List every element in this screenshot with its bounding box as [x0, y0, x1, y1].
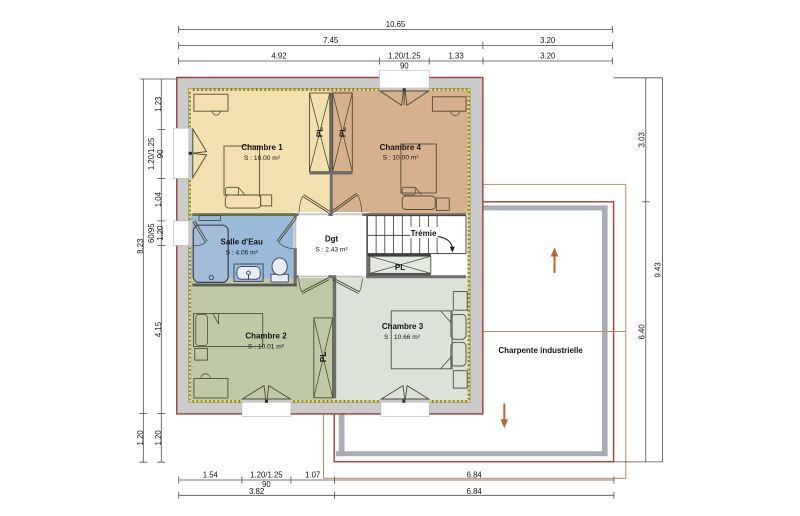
svg-text:S : 4.06 m²: S : 4.06 m² — [226, 250, 259, 257]
svg-text:1.20: 1.20 — [154, 430, 163, 446]
svg-text:PL: PL — [319, 352, 328, 362]
svg-text:Chambre 1: Chambre 1 — [241, 143, 283, 152]
svg-text:3.20: 3.20 — [540, 36, 556, 45]
svg-text:PL: PL — [395, 263, 405, 272]
svg-text:1.33: 1.33 — [449, 52, 464, 61]
svg-text:Salle d'Eau: Salle d'Eau — [221, 238, 263, 247]
svg-text:3.20: 3.20 — [540, 52, 556, 61]
svg-text:Chambre 4: Chambre 4 — [380, 143, 422, 152]
svg-text:1.20/1.25: 1.20/1.25 — [388, 52, 421, 61]
svg-text:Charpente industrielle: Charpente industrielle — [498, 346, 583, 355]
svg-text:8.23: 8.23 — [136, 239, 145, 254]
svg-text:Dgt: Dgt — [325, 235, 339, 244]
svg-text:3.82: 3.82 — [249, 487, 264, 496]
svg-text:PL: PL — [316, 127, 325, 137]
svg-text:1.20: 1.20 — [136, 430, 145, 446]
svg-text:6.84: 6.84 — [467, 487, 483, 496]
svg-text:90: 90 — [400, 61, 409, 70]
svg-text:1.07: 1.07 — [305, 471, 320, 480]
svg-text:6.84: 6.84 — [467, 471, 483, 480]
svg-text:S : 10.00 m²: S : 10.00 m² — [383, 154, 420, 161]
svg-text:9.43: 9.43 — [654, 262, 663, 277]
svg-text:6.40: 6.40 — [637, 324, 646, 340]
svg-text:3.03: 3.03 — [637, 132, 646, 147]
svg-text:S : 2.43 m²: S : 2.43 m² — [315, 246, 348, 253]
svg-text:7.45: 7.45 — [323, 36, 339, 45]
svg-text:PL: PL — [339, 127, 348, 137]
svg-text:1.23: 1.23 — [154, 97, 163, 112]
svg-text:1.20: 1.20 — [156, 225, 165, 241]
svg-text:90: 90 — [156, 149, 165, 158]
svg-text:S : 10.66 m²: S : 10.66 m² — [384, 334, 421, 341]
svg-text:Trémie: Trémie — [411, 229, 437, 238]
svg-text:10.65: 10.65 — [386, 20, 406, 29]
svg-text:S : 10.01 m²: S : 10.01 m² — [248, 344, 285, 351]
svg-text:Chambre 3: Chambre 3 — [382, 322, 424, 331]
svg-text:1.20/1.25: 1.20/1.25 — [250, 471, 283, 480]
svg-text:4.15: 4.15 — [154, 321, 163, 337]
svg-text:4.92: 4.92 — [271, 52, 286, 61]
svg-text:1.04: 1.04 — [154, 191, 163, 207]
svg-text:S : 10.00 m²: S : 10.00 m² — [244, 155, 281, 162]
svg-text:1.54: 1.54 — [203, 471, 219, 480]
svg-text:Chambre 2: Chambre 2 — [245, 331, 287, 340]
